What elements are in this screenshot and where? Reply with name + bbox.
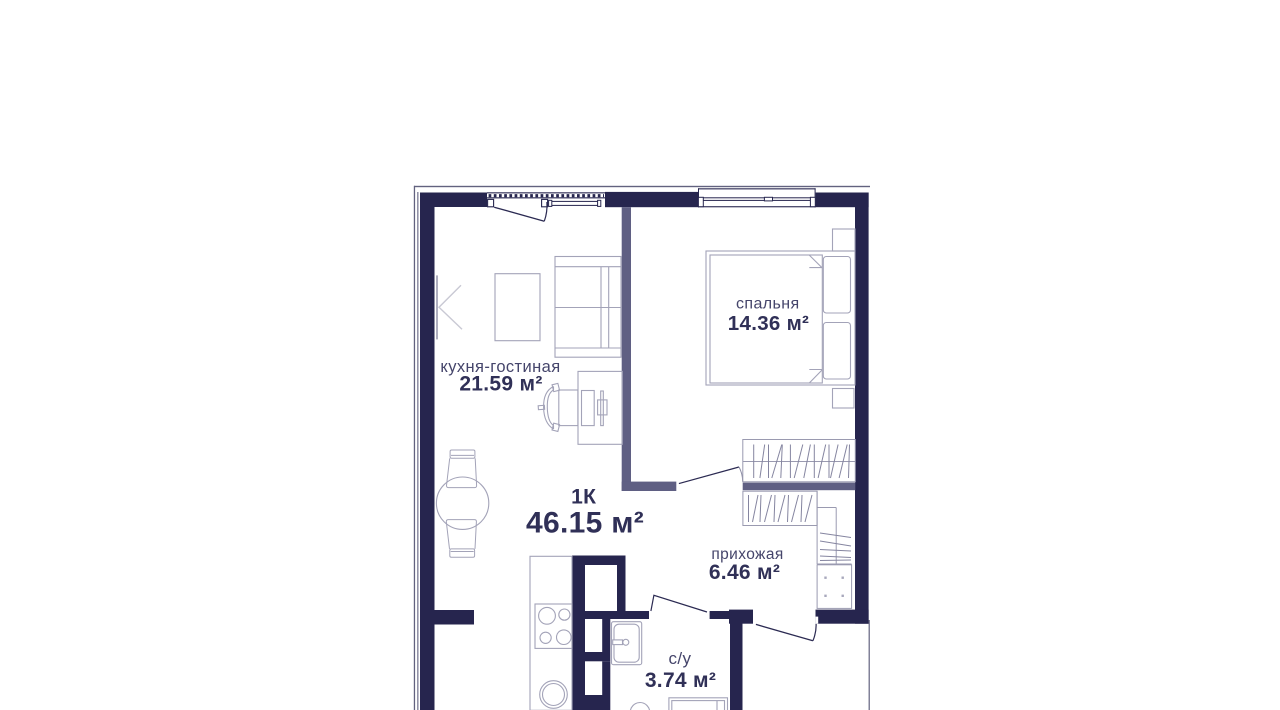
- svg-text:14.36 м²: 14.36 м²: [728, 312, 809, 335]
- svg-text:спальня: спальня: [736, 296, 800, 313]
- svg-text:21.59 м²: 21.59 м²: [459, 373, 542, 396]
- svg-text:3.74 м²: 3.74 м²: [645, 669, 716, 692]
- svg-text:6.46 м²: 6.46 м²: [709, 561, 780, 584]
- svg-text:1К: 1К: [571, 486, 596, 509]
- svg-text:46.15 м²: 46.15 м²: [526, 507, 644, 540]
- svg-text:с/у: с/у: [669, 649, 692, 668]
